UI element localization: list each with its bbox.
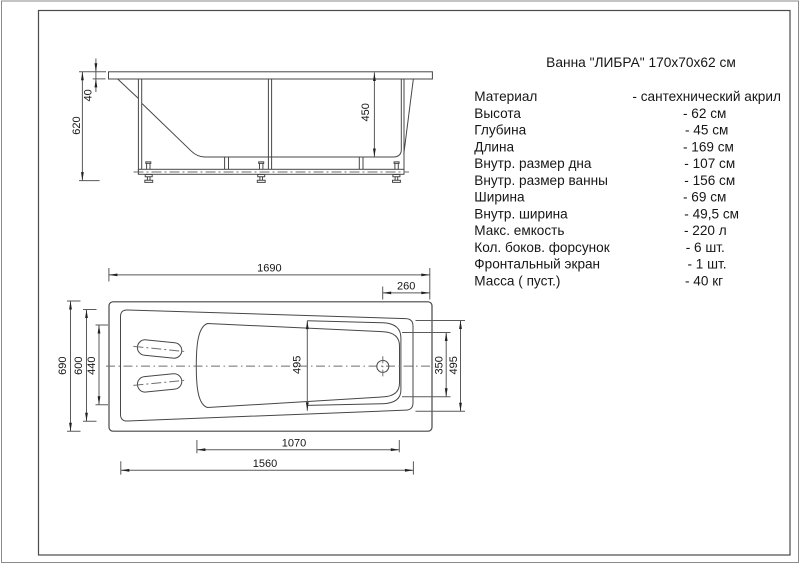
svg-text:450: 450 — [360, 103, 372, 121]
svg-text:690: 690 — [57, 357, 69, 375]
svg-text:600: 600 — [73, 357, 85, 375]
svg-text:- 169 см: - 169 см — [683, 139, 734, 154]
svg-text:Внутр. размер ванны: Внутр. размер ванны — [474, 173, 608, 188]
svg-text:- 156 см: - 156 см — [684, 173, 735, 188]
svg-text:1560: 1560 — [253, 458, 277, 470]
svg-text:- сантехнический акрил: - сантехнический акрил — [632, 89, 781, 104]
svg-text:- 40 кг: - 40 кг — [685, 273, 723, 288]
svg-text:350: 350 — [434, 356, 446, 374]
svg-text:- 107 см: - 107 см — [684, 156, 735, 171]
svg-text:1070: 1070 — [282, 437, 306, 449]
svg-text:Макс. емкость: Макс. емкость — [474, 223, 564, 238]
svg-text:40: 40 — [83, 89, 95, 101]
svg-text:Материал: Материал — [474, 89, 537, 104]
svg-text:1690: 1690 — [257, 262, 281, 274]
svg-text:495: 495 — [448, 356, 460, 374]
svg-text:- 69 см: - 69 см — [683, 190, 726, 205]
svg-text:- 49,5 см: - 49,5 см — [684, 206, 739, 221]
svg-text:Ширина: Ширина — [474, 190, 525, 205]
svg-text:440: 440 — [86, 357, 98, 375]
svg-text:Внутр. размер дна: Внутр. размер дна — [474, 156, 592, 171]
svg-text:Длина: Длина — [474, 139, 514, 154]
svg-text:- 220 л: - 220 л — [684, 223, 727, 238]
svg-text:Масса ( пуст.): Масса ( пуст.) — [474, 273, 560, 288]
svg-text:- 1 шт.: - 1 шт. — [688, 257, 727, 272]
svg-text:620: 620 — [71, 116, 83, 134]
svg-text:495: 495 — [292, 356, 304, 374]
svg-text:260: 260 — [397, 280, 415, 292]
svg-text:Ванна "ЛИБРА" 170х70х62 см: Ванна "ЛИБРА" 170х70х62 см — [546, 55, 736, 70]
svg-text:- 45 см: - 45 см — [685, 123, 728, 138]
svg-text:Фронтальный экран: Фронтальный экран — [474, 257, 600, 272]
svg-text:- 62 см: - 62 см — [683, 106, 726, 121]
svg-text:Глубина: Глубина — [474, 123, 526, 138]
svg-text:Внутр. ширина: Внутр. ширина — [474, 206, 568, 221]
svg-text:Кол. боков. форсунок: Кол. боков. форсунок — [474, 240, 610, 255]
svg-text:- 6 шт.: - 6 шт. — [686, 240, 725, 255]
svg-text:Высота: Высота — [474, 106, 521, 121]
